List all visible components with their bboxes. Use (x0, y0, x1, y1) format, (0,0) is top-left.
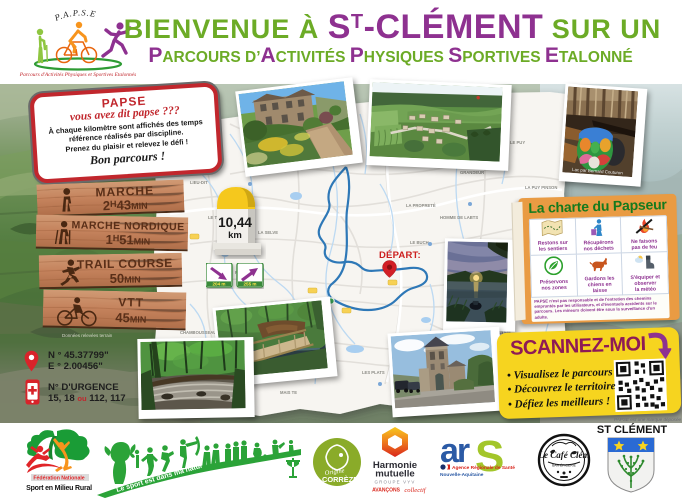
svg-text:Sport en Milieu Rural: Sport en Milieu Rural (26, 485, 92, 492)
svg-text:LE PUY: LE PUY (510, 140, 525, 145)
svg-text:CORRÈZE: CORRÈZE (322, 475, 358, 484)
svg-text:Fédération Nationale: Fédération Nationale (33, 476, 84, 482)
svg-text:MAIS TE: MAIS TE (280, 390, 297, 395)
svg-text:mutuelle: mutuelle (375, 469, 414, 480)
svg-text:LE BUCH: LE BUCH (410, 240, 429, 245)
svg-text:Agence Régionale de Santé: Agence Régionale de Santé (452, 465, 515, 471)
svg-text:collectif: collectif (404, 487, 426, 494)
svg-text:10,44: 10,44 (218, 215, 252, 230)
svg-text:CHAMBOUSSEAU: CHAMBOUSSEAU (180, 330, 216, 335)
svg-text:GRANDEUR: GRANDEUR (460, 170, 484, 175)
svg-text:VTT: VTT (118, 295, 144, 310)
svg-text:Le Café Clém: Le Café Clém (538, 450, 590, 460)
svg-text:AVANÇONS: AVANÇONS (372, 488, 401, 494)
svg-text:255 m: 255 m (243, 282, 256, 287)
svg-text:LES PLATS: LES PLATS (362, 370, 385, 375)
svg-text:TRAIL COURSE: TRAIL COURSE (77, 256, 173, 272)
svg-text:LIEU-DIT: LIEU-DIT (190, 180, 208, 185)
svg-text:Parcours d'Activités Physiques: Parcours d'Activités Physiques et Sporti… (19, 72, 136, 78)
svg-text:LA PUY PINSON: LA PUY PINSON (525, 185, 557, 190)
svg-text:Le sport est dans ma nature: Le sport est dans ma nature (116, 461, 208, 493)
svg-text:204 m: 204 m (212, 282, 225, 287)
svg-text:ar: ar (440, 434, 470, 470)
svg-text:km: km (228, 230, 242, 241)
svg-text:Nouvelle-Aquitaine: Nouvelle-Aquitaine (440, 472, 484, 478)
svg-text:BAR ÉPICERIE: BAR ÉPICERIE (552, 463, 576, 468)
svg-text:MARCHE NORDIQUE: MARCHE NORDIQUE (71, 219, 184, 233)
svg-text:P.A.P.S.E: P.A.P.S.E (52, 7, 97, 23)
svg-text:GROUPE VYV: GROUPE VYV (374, 480, 415, 485)
svg-text:HOMME DE LABTS: HOMME DE LABTS (440, 215, 478, 220)
svg-text:LA PROPRETÉ: LA PROPRETÉ (406, 203, 436, 208)
